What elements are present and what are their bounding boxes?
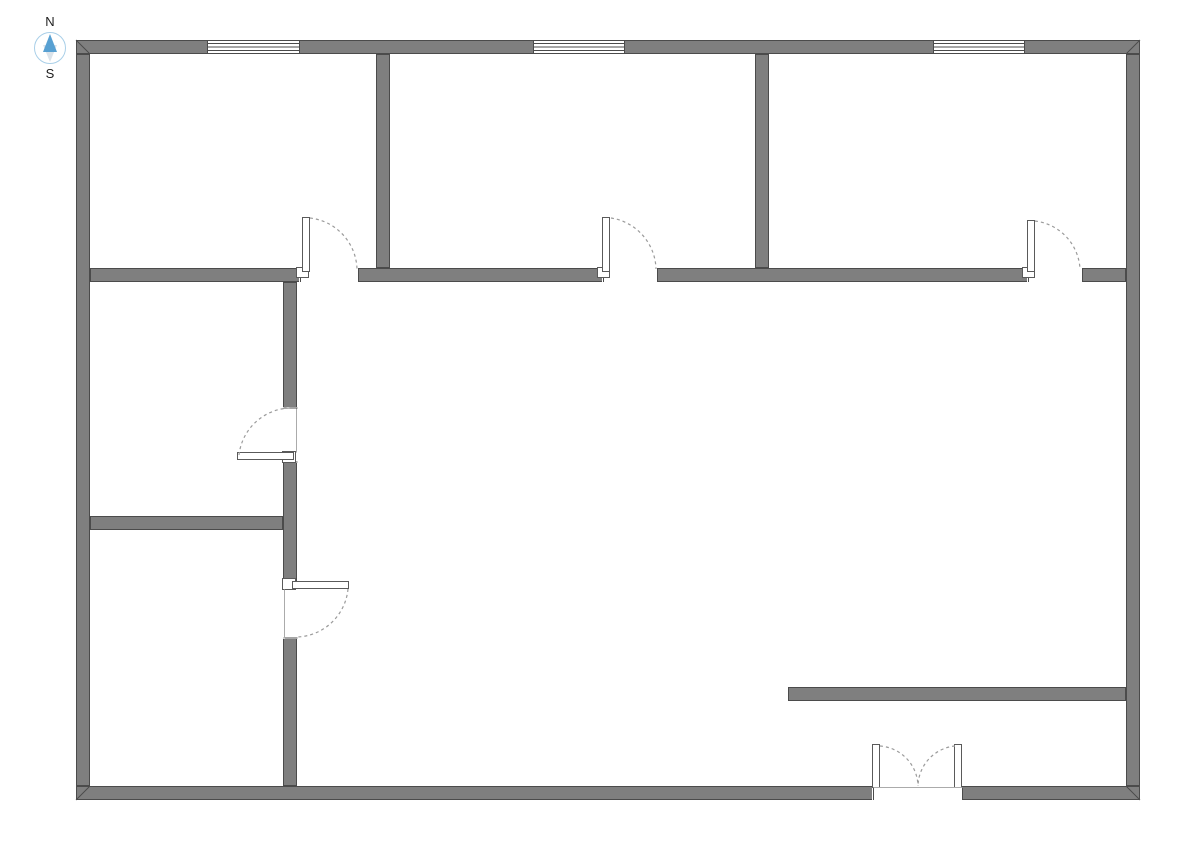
- compass-south-label: S: [46, 66, 55, 82]
- door-leaf: [293, 582, 349, 589]
- wall-divider-left-rooms: [91, 517, 283, 530]
- door-leaf: [303, 218, 310, 272]
- wall-divider-room1-room2: [377, 55, 390, 268]
- door-opening: [1027, 267, 1083, 283]
- wall-partial-bottom-right: [789, 688, 1126, 701]
- door-swing-arc: [297, 589, 348, 637]
- door-leaf: [955, 745, 962, 788]
- compass-north-needle: [43, 34, 57, 52]
- door-swing-arc: [918, 746, 955, 786]
- door-swing-arc: [1035, 221, 1080, 269]
- compass-north-label: N: [45, 14, 54, 30]
- wall-divider-room2-room3: [756, 55, 769, 268]
- wall-exterior-bottom: [77, 787, 1140, 800]
- wall-vertical-left-rooms: [284, 283, 297, 786]
- door-opening: [602, 267, 658, 283]
- door-swing-arc: [880, 746, 918, 786]
- door-swing-arc: [611, 218, 656, 269]
- compass-rose: N S: [32, 14, 68, 82]
- door-leaf: [873, 745, 880, 788]
- compass-needle-icon: [33, 31, 67, 65]
- door-swing-arc: [310, 218, 357, 269]
- door-leaf: [238, 453, 294, 460]
- wall-exterior-right: [1127, 55, 1140, 786]
- door-leaf: [1028, 221, 1035, 272]
- floor-plan-drawing: [0, 0, 1191, 841]
- floorplan-page: N S: [0, 0, 1191, 841]
- door-leaf: [603, 218, 610, 272]
- wall-exterior-left: [77, 55, 90, 786]
